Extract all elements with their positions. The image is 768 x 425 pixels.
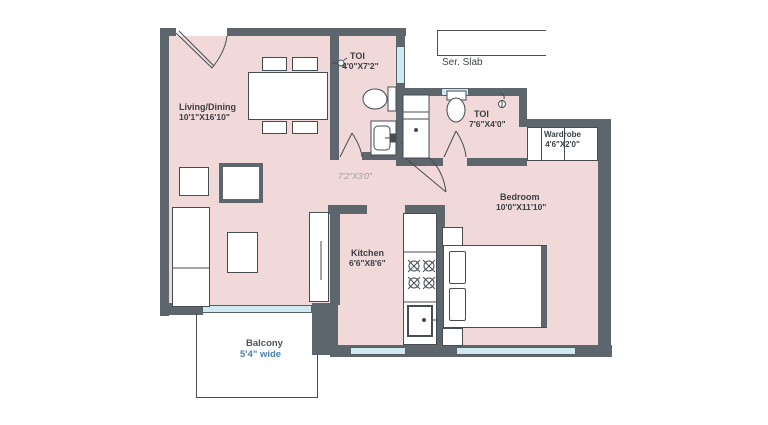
dining-chair	[262, 121, 287, 134]
service-slab-outline	[437, 30, 546, 56]
floor-toilet1	[338, 36, 396, 160]
dining-chair	[262, 57, 287, 71]
service-slab-label: Ser. Slab	[442, 57, 483, 69]
toilet1-label: TOI	[350, 51, 365, 61]
toilet1-dims: 4'0"X7'2"	[342, 62, 379, 72]
tv-unit	[219, 163, 263, 203]
floor-toilet2	[396, 96, 527, 166]
pillow	[449, 288, 466, 321]
window-bedroom	[456, 347, 576, 355]
wall-toilet2-bottom-right	[467, 158, 527, 166]
kitchen-label: Kitchen	[351, 248, 384, 258]
wall-kitchen-left	[330, 205, 340, 305]
tall-unit	[309, 212, 329, 302]
toilet2-dims: 7'6"X4'0"	[469, 120, 506, 130]
bedroom-label: Bedroom	[500, 192, 540, 202]
window-kitchen	[350, 347, 406, 355]
sofa	[172, 207, 210, 307]
balcony-outline-right	[317, 355, 318, 398]
wall-wardrobe-top	[519, 119, 600, 127]
dining-table	[248, 72, 328, 120]
window-toilet1-vent	[396, 46, 405, 84]
living-room-label: Living/Dining	[179, 102, 236, 112]
floor-plan: Living/Dining 10'1"X16'10" TOI 4'0"X7'2"…	[0, 0, 768, 425]
living-room-dims: 10'1"X16'10"	[179, 113, 230, 123]
wall-left	[160, 28, 169, 316]
coffee-table	[227, 232, 258, 273]
toilet2-label: TOI	[474, 109, 489, 119]
bed-headboard	[541, 246, 547, 327]
window-balcony-slider	[202, 305, 312, 313]
wall-top-stub	[160, 28, 176, 36]
wall-toilet1-bottom-stub	[330, 152, 338, 160]
balcony-outline-bottom	[196, 397, 318, 398]
window-toilet2-vent	[441, 88, 469, 96]
balcony-outline-left	[196, 313, 197, 398]
bedside-table	[442, 227, 463, 246]
dining-chair	[292, 121, 318, 134]
dining-chair	[292, 57, 318, 71]
wall-toilet2-bottom-left	[396, 158, 443, 166]
wall-toilet1-left	[330, 36, 339, 160]
bedside-table	[442, 328, 463, 346]
bedroom-dims: 10'0"X11'10"	[496, 203, 546, 213]
wall-right	[598, 119, 611, 357]
wardrobe-dims: 4'6"X2'0"	[527, 140, 598, 149]
side-table	[179, 167, 209, 196]
wardrobe-label: Wardrobe	[527, 130, 598, 139]
balcony-dims: 5'4" wide	[240, 350, 281, 361]
kitchen-dims: 6'6"X8'6"	[349, 259, 386, 269]
pillow	[449, 251, 466, 284]
passage-dims: 7'2"X3'0"	[338, 172, 372, 182]
kitchen-sink	[407, 305, 433, 337]
wall-top	[227, 28, 406, 36]
